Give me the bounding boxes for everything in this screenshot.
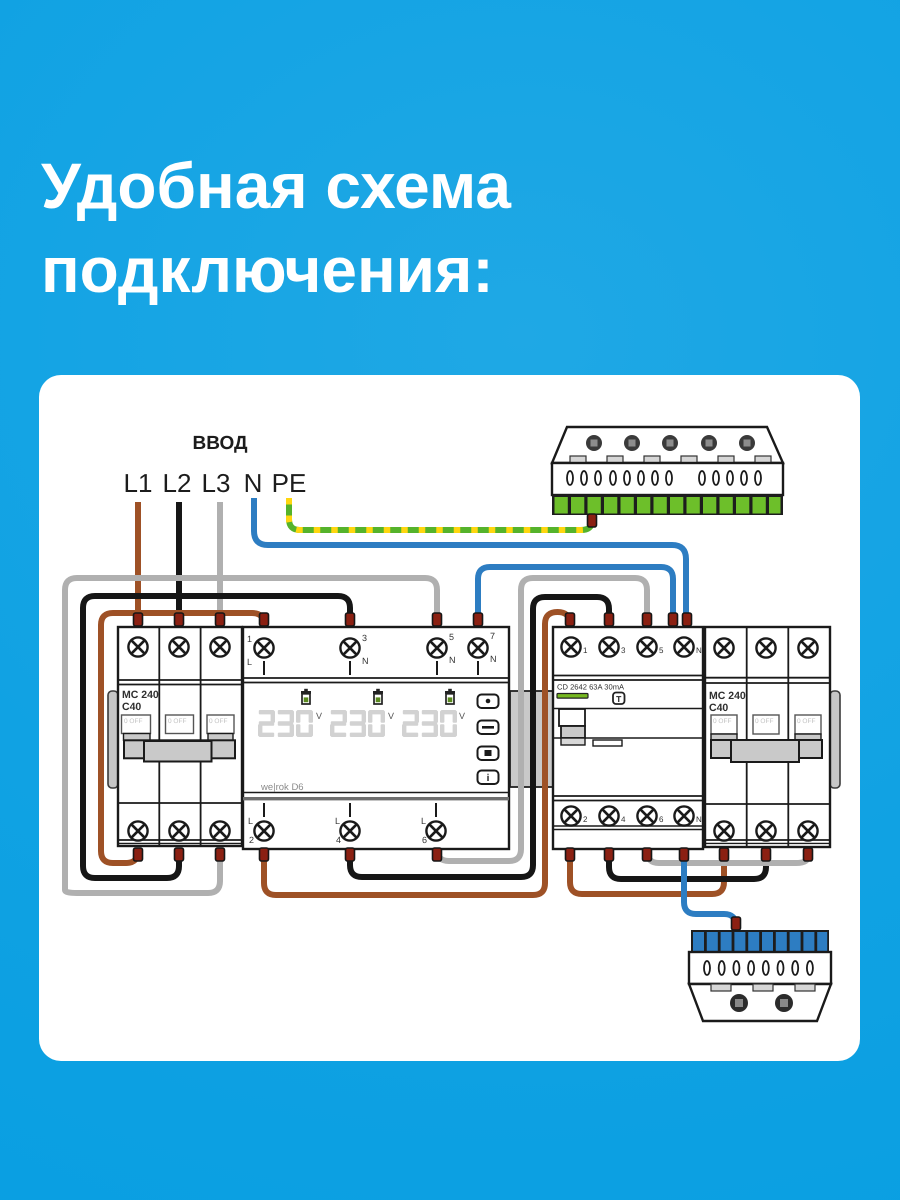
svg-text:0 OFF: 0 OFF	[209, 718, 227, 725]
svg-text:L: L	[247, 657, 252, 667]
svg-text:L: L	[248, 816, 253, 826]
svg-text:1: 1	[247, 634, 252, 644]
svg-text:PE: PE	[272, 468, 307, 498]
svg-text:6: 6	[659, 815, 664, 824]
svg-text:CD 2642 63A 30mA: CD 2642 63A 30mA	[557, 683, 625, 692]
svg-text:T: T	[616, 694, 622, 704]
svg-text:4: 4	[336, 835, 341, 845]
svg-text:C40: C40	[122, 701, 141, 713]
svg-text:4: 4	[621, 815, 626, 824]
svg-text:i: i	[487, 773, 490, 784]
svg-text:0 OFF: 0 OFF	[168, 718, 186, 725]
svg-text:L3: L3	[202, 468, 231, 498]
svg-text:L1: L1	[124, 468, 153, 498]
svg-text:5: 5	[659, 646, 664, 655]
svg-text:L2: L2	[163, 468, 192, 498]
svg-text:ВВОД: ВВОД	[192, 433, 247, 454]
svg-text:7: 7	[490, 631, 495, 641]
svg-text:1: 1	[583, 646, 588, 655]
svg-text:N: N	[696, 815, 702, 824]
svg-text:MC 240: MC 240	[709, 690, 746, 702]
svg-text:N: N	[696, 646, 702, 655]
svg-text:N: N	[362, 656, 369, 666]
svg-text:V: V	[459, 711, 465, 721]
svg-text:V: V	[316, 711, 322, 721]
svg-text:N: N	[490, 654, 497, 664]
svg-text:5: 5	[449, 632, 454, 642]
svg-text:we|rok D6: we|rok D6	[260, 782, 304, 793]
svg-text:0 OFF: 0 OFF	[713, 718, 731, 725]
svg-text:N: N	[449, 655, 456, 665]
svg-text:N: N	[244, 468, 263, 498]
svg-text:0 OFF: 0 OFF	[124, 718, 142, 725]
svg-text:0 OFF: 0 OFF	[755, 718, 773, 725]
svg-text:0 OFF: 0 OFF	[797, 718, 815, 725]
svg-text:L: L	[335, 816, 340, 826]
svg-text:C40: C40	[709, 702, 728, 714]
svg-text:3: 3	[621, 646, 626, 655]
svg-text:2: 2	[249, 835, 254, 845]
svg-text:MC 240: MC 240	[122, 689, 159, 701]
svg-text:2: 2	[583, 815, 588, 824]
svg-text:3: 3	[362, 633, 367, 643]
svg-text:L: L	[421, 816, 426, 826]
svg-text:V: V	[388, 711, 394, 721]
svg-text:6: 6	[422, 835, 427, 845]
